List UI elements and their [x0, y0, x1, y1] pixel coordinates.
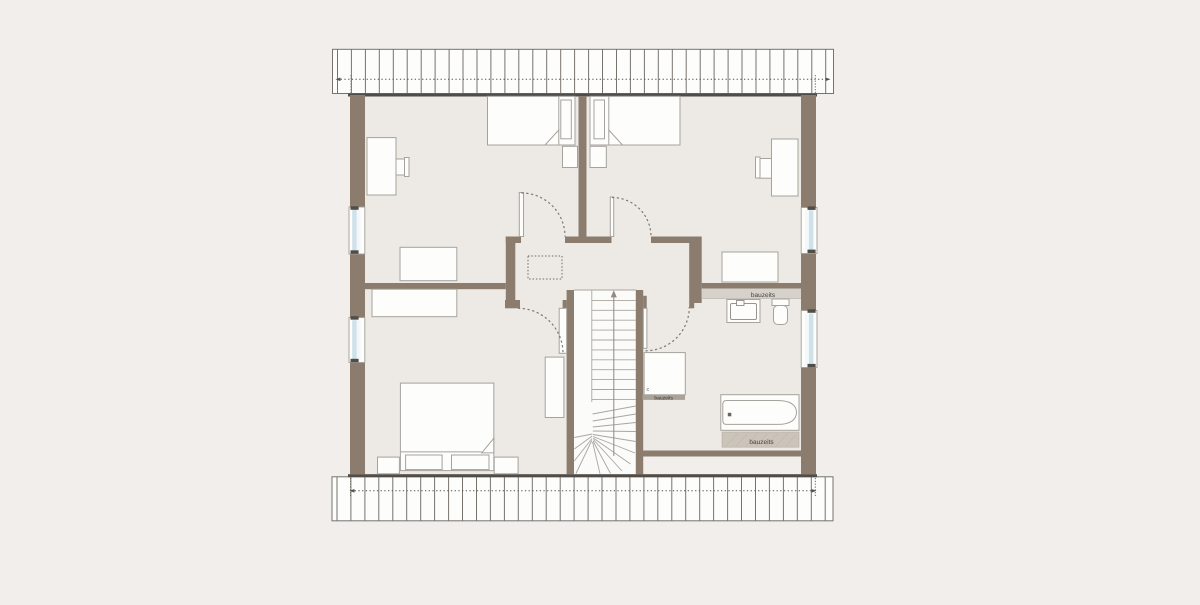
svg-text:bauzeits: bauzeits — [751, 292, 776, 299]
svg-text:bauzeits: bauzeits — [749, 439, 774, 446]
svg-text:c: c — [647, 387, 650, 393]
svg-text:bauzeits: bauzeits — [654, 395, 673, 401]
